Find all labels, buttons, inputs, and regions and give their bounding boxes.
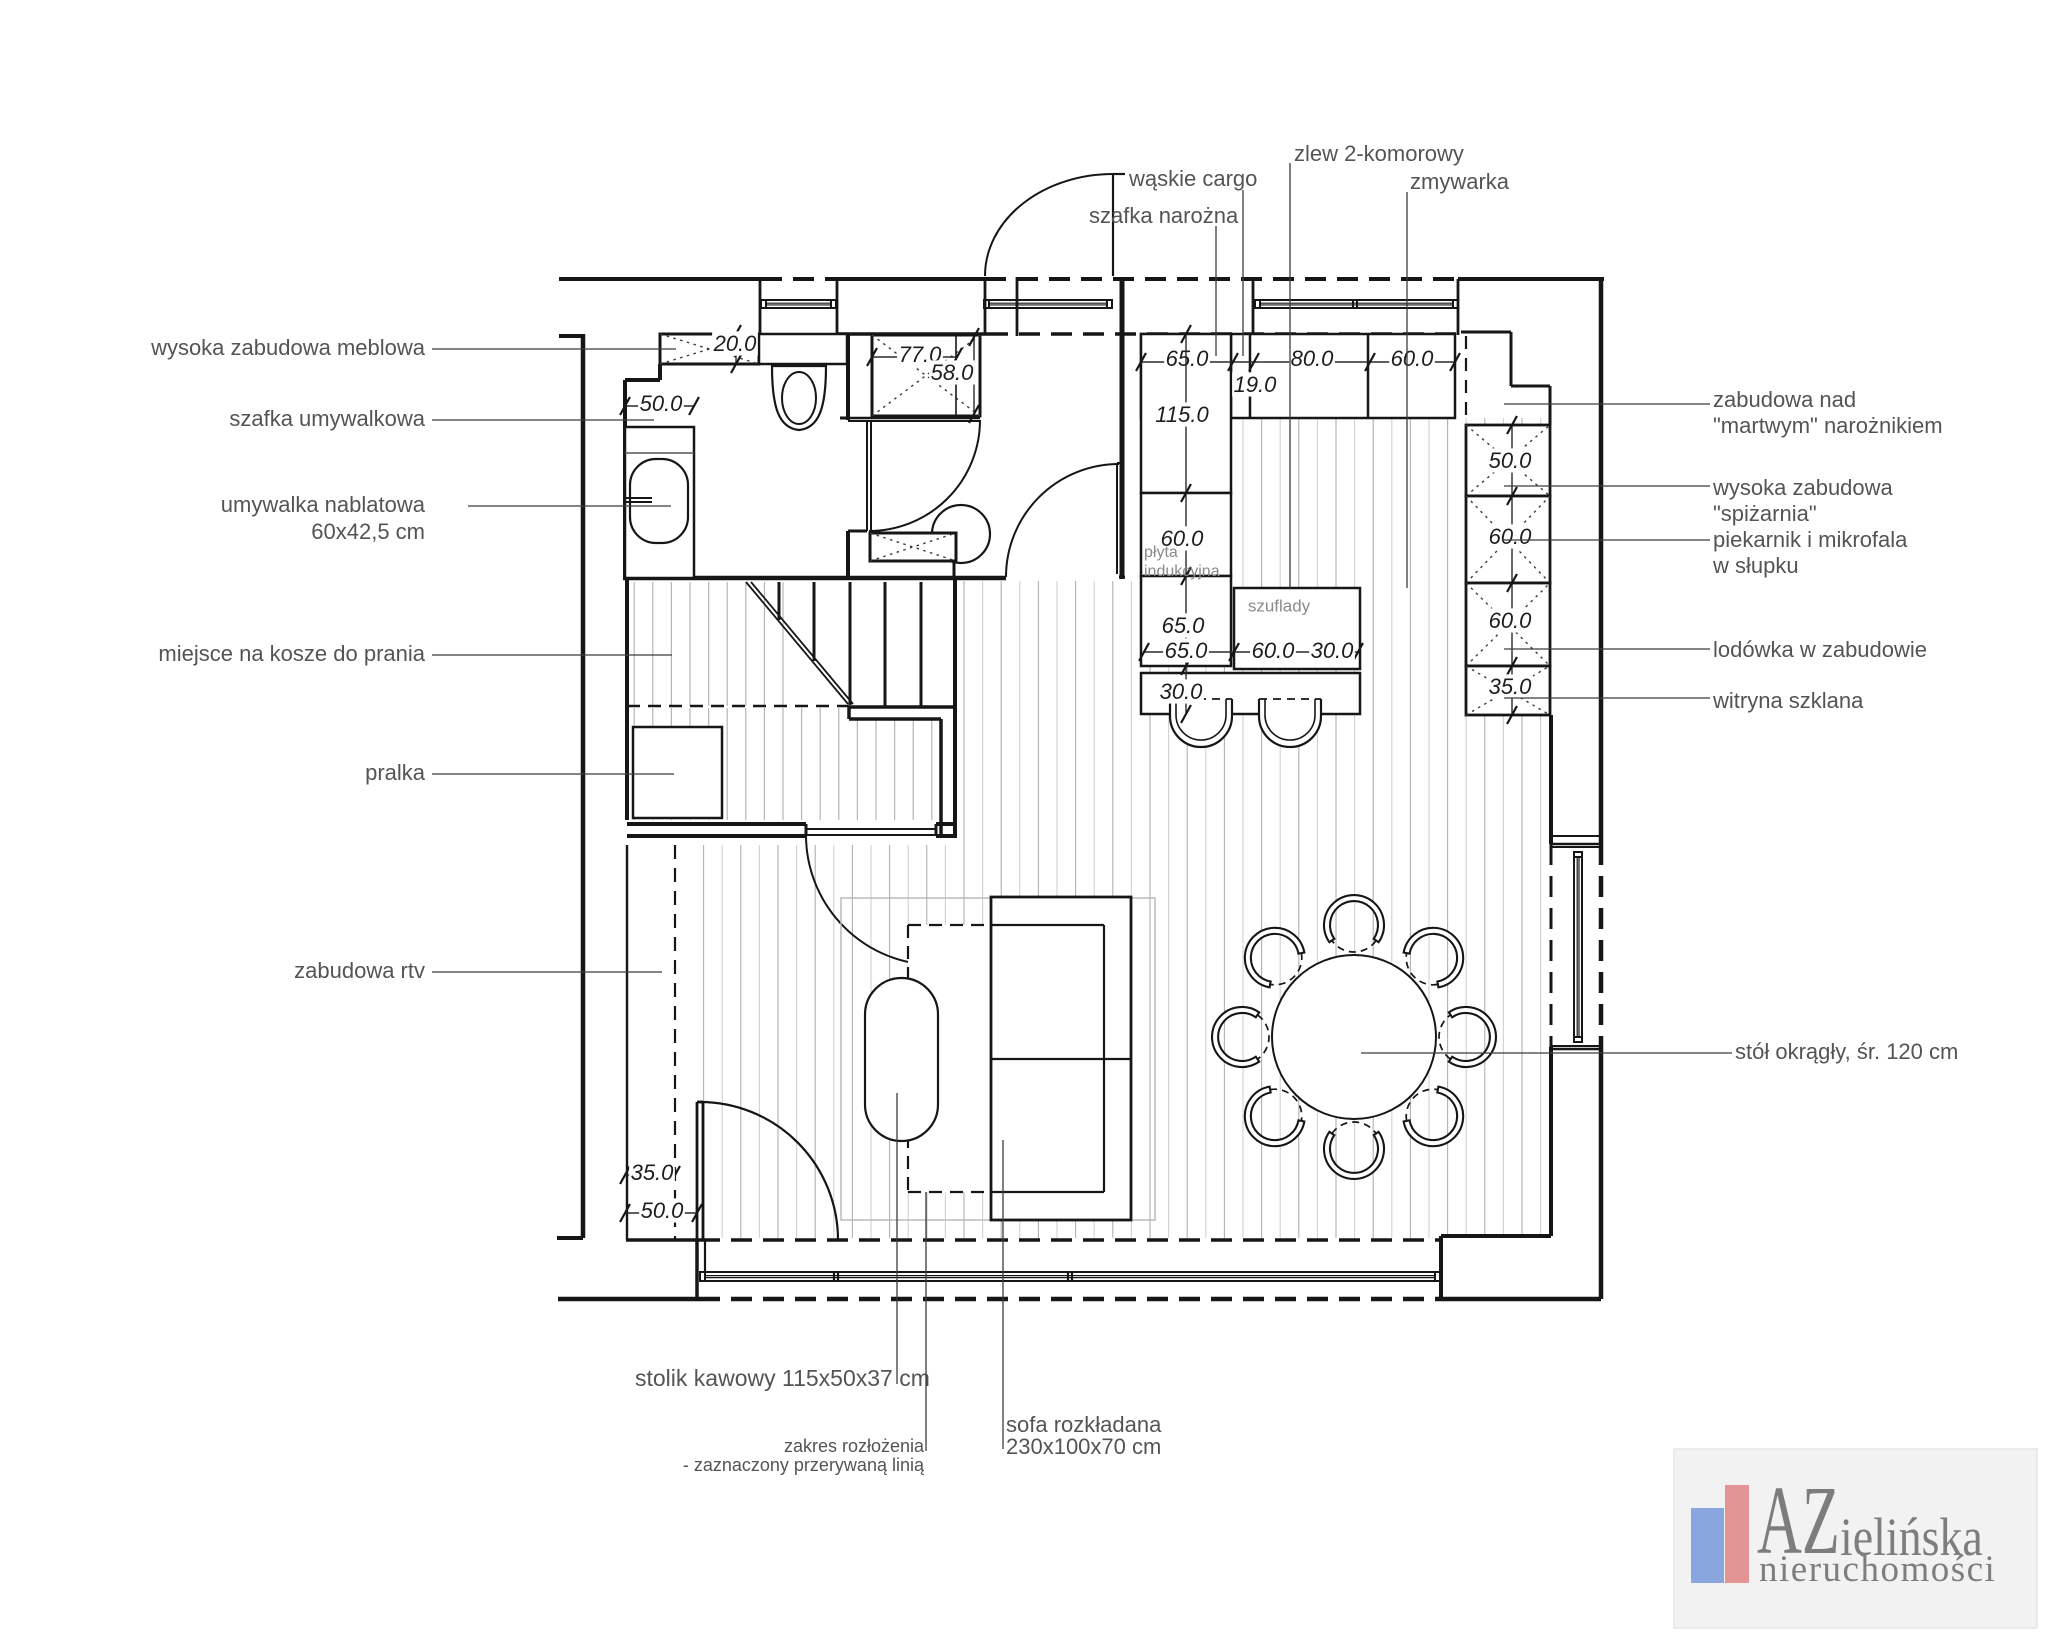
svg-text:wąskie cargo: wąskie cargo xyxy=(1128,166,1257,191)
svg-text:stolik kawowy 115x50x37 cm: stolik kawowy 115x50x37 cm xyxy=(635,1365,930,1391)
svg-text:20.0: 20.0 xyxy=(713,331,758,356)
svg-text:19.0: 19.0 xyxy=(1234,372,1278,397)
svg-text:65.0: 65.0 xyxy=(1162,613,1206,638)
svg-text:115.0: 115.0 xyxy=(1155,402,1209,427)
svg-text:szafka narożna: szafka narożna xyxy=(1089,203,1239,228)
svg-text:65.0: 65.0 xyxy=(1166,346,1210,371)
svg-text:zabudowa nad: zabudowa nad xyxy=(1713,387,1856,412)
svg-text:stół okrągły, śr. 120 cm: stół okrągły, śr. 120 cm xyxy=(1735,1039,1958,1064)
svg-text:"martwym" narożnikiem: "martwym" narożnikiem xyxy=(1713,413,1943,438)
svg-text:60.0: 60.0 xyxy=(1489,608,1533,633)
svg-text:50.0: 50.0 xyxy=(641,1198,685,1223)
svg-text:50.0: 50.0 xyxy=(1489,448,1533,473)
svg-text:35.0: 35.0 xyxy=(631,1160,675,1185)
svg-text:zlew 2-komorowy: zlew 2-komorowy xyxy=(1294,141,1464,166)
svg-text:miejsce na kosze do prania: miejsce na kosze do prania xyxy=(158,641,425,666)
svg-text:indukcyjna: indukcyjna xyxy=(1144,563,1220,580)
svg-text:piekarnik i mikrofala: piekarnik i mikrofala xyxy=(1713,527,1908,552)
svg-text:szafka umywalkowa: szafka umywalkowa xyxy=(229,406,425,431)
svg-text:30.0: 30.0 xyxy=(1160,679,1204,704)
svg-text:35.0: 35.0 xyxy=(1489,674,1533,699)
svg-text:60.0: 60.0 xyxy=(1391,346,1435,371)
svg-text:szuflady: szuflady xyxy=(1248,596,1311,615)
svg-text:witryna szklana: witryna szklana xyxy=(1712,688,1864,713)
svg-text:wysoka zabudowa meblowa: wysoka zabudowa meblowa xyxy=(150,335,426,360)
svg-text:- zaznaczony przerywaną linią: - zaznaczony przerywaną linią xyxy=(683,1455,925,1475)
svg-text:60.0: 60.0 xyxy=(1252,638,1296,663)
svg-text:w słupku: w słupku xyxy=(1712,553,1799,578)
svg-text:"spiżarnia": "spiżarnia" xyxy=(1713,501,1817,526)
svg-text:pralka: pralka xyxy=(365,760,426,785)
svg-text:zakres rozłożenia: zakres rozłożenia xyxy=(784,1436,925,1456)
svg-text:zmywarka: zmywarka xyxy=(1410,169,1510,194)
svg-text:60x42,5 cm: 60x42,5 cm xyxy=(311,519,425,544)
svg-text:zabudowa rtv: zabudowa rtv xyxy=(294,958,425,983)
svg-text:58.0: 58.0 xyxy=(931,360,975,385)
svg-text:80.0: 80.0 xyxy=(1291,346,1335,371)
svg-text:umywalka nablatowa: umywalka nablatowa xyxy=(221,492,426,517)
svg-text:płyta: płyta xyxy=(1144,544,1178,561)
svg-text:50.0: 50.0 xyxy=(640,391,684,416)
svg-text:230x100x70 cm: 230x100x70 cm xyxy=(1006,1434,1161,1459)
svg-text:nieruchomości: nieruchomości xyxy=(1759,1549,1996,1590)
svg-text:lodówka w zabudowie: lodówka w zabudowie xyxy=(1713,637,1927,662)
svg-text:30.0: 30.0 xyxy=(1311,638,1355,663)
svg-text:65.0: 65.0 xyxy=(1165,638,1209,663)
svg-text:60.0: 60.0 xyxy=(1489,524,1533,549)
svg-text:wysoka zabudowa: wysoka zabudowa xyxy=(1712,475,1894,500)
